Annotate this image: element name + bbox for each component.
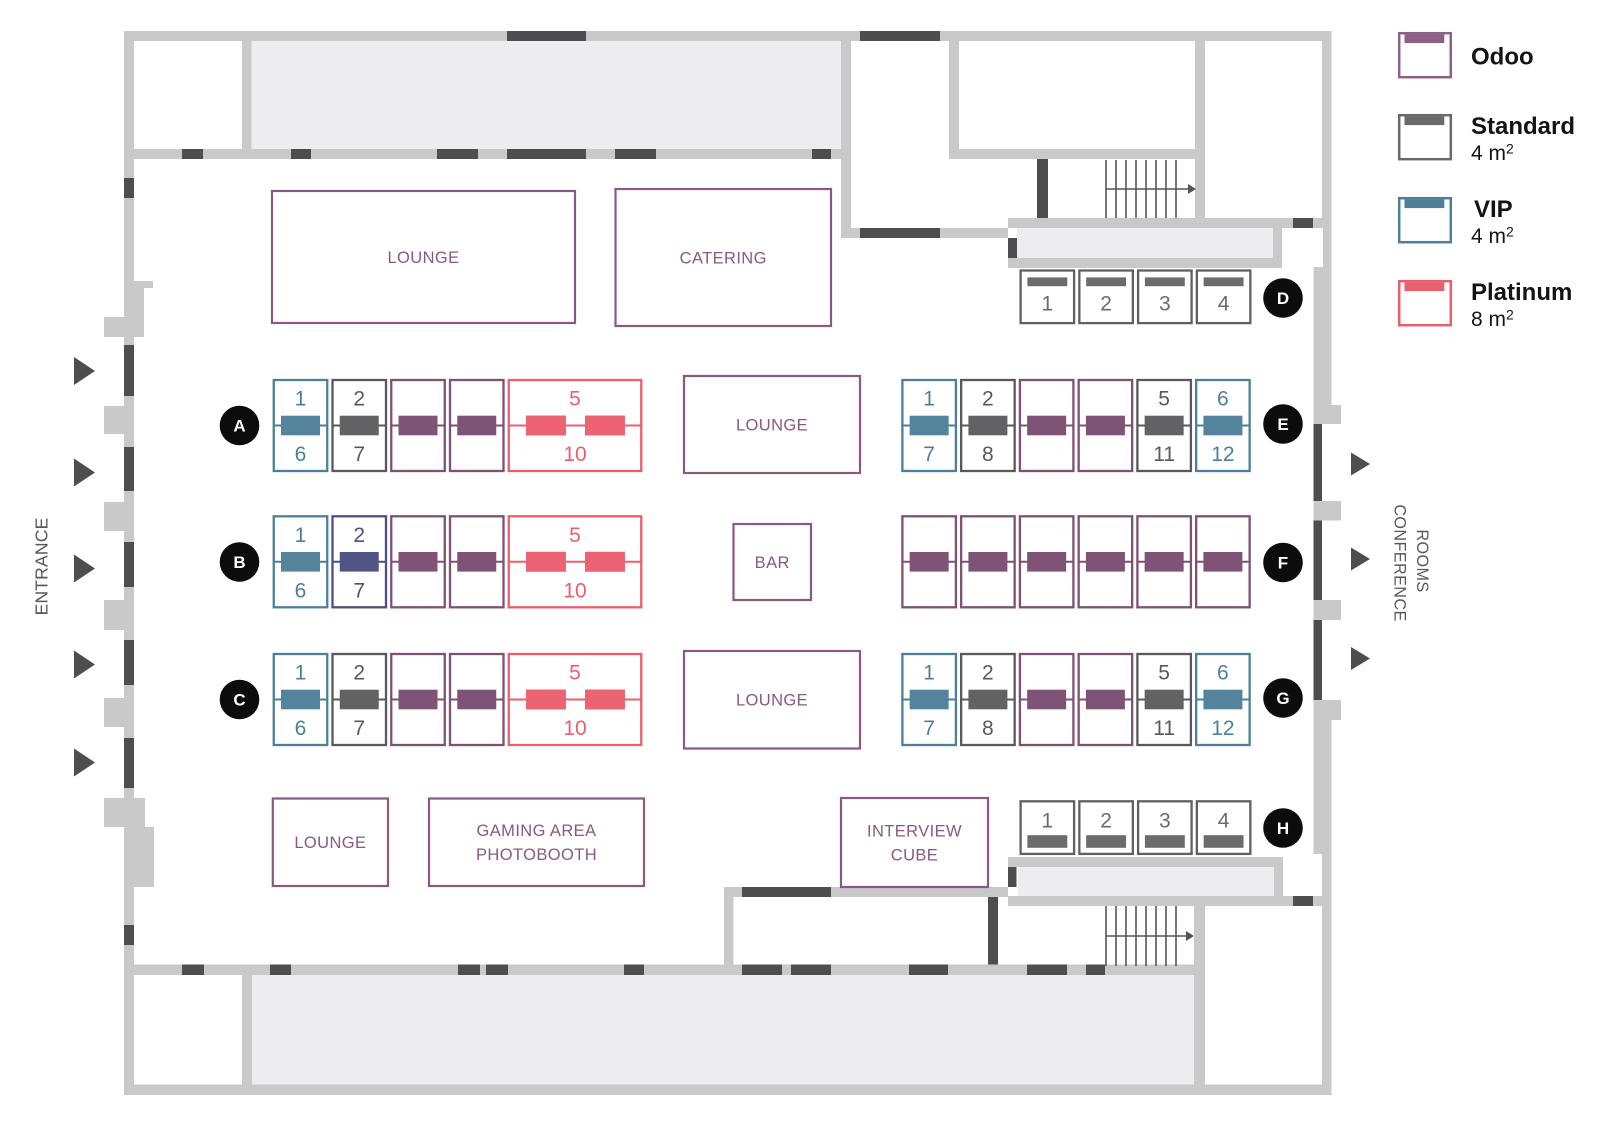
svg-text:2: 2 [1100, 809, 1112, 832]
svg-text:4: 4 [1218, 809, 1230, 832]
svg-text:6: 6 [295, 579, 307, 602]
svg-text:B: B [233, 553, 245, 572]
svg-text:2: 2 [353, 524, 365, 547]
svg-text:11: 11 [1153, 717, 1175, 740]
svg-text:10: 10 [563, 717, 586, 740]
svg-text:11: 11 [1153, 443, 1175, 466]
svg-text:Odoo: Odoo [1471, 44, 1534, 71]
svg-text:10: 10 [563, 443, 586, 466]
svg-text:1: 1 [923, 662, 935, 685]
svg-text:PHOTOBOOTH: PHOTOBOOTH [476, 846, 597, 864]
svg-text:LOUNGE: LOUNGE [736, 416, 808, 434]
svg-text:7: 7 [353, 579, 365, 602]
svg-text:8: 8 [982, 443, 994, 466]
svg-text:7: 7 [353, 717, 365, 740]
svg-text:5: 5 [569, 662, 581, 685]
svg-text:INTERVIEW: INTERVIEW [867, 822, 962, 840]
svg-text:3: 3 [1159, 293, 1171, 316]
svg-text:F: F [1278, 554, 1288, 573]
svg-text:CONFERENCE: CONFERENCE [1391, 504, 1409, 621]
svg-text:2: 2 [1100, 293, 1112, 316]
svg-text:12: 12 [1211, 717, 1234, 740]
svg-text:D: D [1277, 289, 1289, 308]
svg-text:Platinum: Platinum [1471, 279, 1572, 306]
svg-text:1: 1 [1042, 809, 1054, 832]
svg-text:VIP: VIP [1474, 196, 1513, 223]
svg-text:2: 2 [353, 662, 365, 685]
svg-text:Standard: Standard [1471, 113, 1575, 140]
svg-text:5: 5 [569, 524, 581, 547]
svg-text:1: 1 [923, 388, 935, 411]
svg-text:7: 7 [923, 717, 935, 740]
svg-text:7: 7 [923, 443, 935, 466]
svg-text:CATERING: CATERING [680, 249, 767, 267]
svg-text:6: 6 [295, 443, 307, 466]
svg-text:5: 5 [569, 388, 581, 411]
svg-text:6: 6 [295, 717, 307, 740]
svg-text:ENTRANCE: ENTRANCE [32, 518, 52, 616]
svg-text:G: G [1276, 689, 1289, 708]
svg-text:6: 6 [1217, 388, 1229, 411]
svg-text:C: C [233, 691, 245, 710]
svg-text:2: 2 [982, 388, 994, 411]
svg-text:6: 6 [1217, 662, 1229, 685]
svg-text:1: 1 [1042, 293, 1054, 316]
svg-text:7: 7 [353, 443, 365, 466]
svg-text:12: 12 [1211, 443, 1234, 466]
svg-text:H: H [1277, 819, 1289, 838]
svg-text:8: 8 [982, 717, 994, 740]
svg-text:GAMING AREA: GAMING AREA [477, 822, 597, 840]
svg-text:1: 1 [295, 524, 307, 547]
svg-text:5: 5 [1158, 662, 1170, 685]
svg-text:2: 2 [353, 388, 365, 411]
svg-text:CUBE: CUBE [891, 846, 938, 864]
svg-text:1: 1 [295, 662, 307, 685]
svg-text:10: 10 [563, 579, 586, 602]
svg-text:E: E [1277, 415, 1288, 434]
svg-text:5: 5 [1158, 388, 1170, 411]
svg-text:2: 2 [982, 662, 994, 685]
svg-text:4: 4 [1218, 293, 1230, 316]
svg-text:3: 3 [1159, 809, 1171, 832]
svg-text:LOUNGE: LOUNGE [294, 834, 366, 852]
svg-text:1: 1 [295, 388, 307, 411]
svg-text:LOUNGE: LOUNGE [387, 249, 459, 267]
svg-text:A: A [233, 417, 245, 436]
svg-text:ROOMS: ROOMS [1413, 529, 1431, 592]
svg-text:LOUNGE: LOUNGE [736, 692, 808, 710]
svg-text:BAR: BAR [755, 554, 790, 572]
